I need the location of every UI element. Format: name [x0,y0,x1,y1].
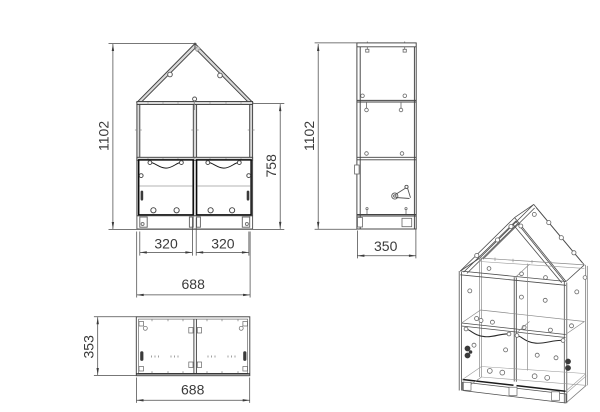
svg-text:758: 758 [263,154,279,178]
svg-text:688: 688 [181,382,205,398]
svg-text:1102: 1102 [96,121,112,151]
svg-text:688: 688 [182,276,206,292]
svg-text:350: 350 [374,238,398,254]
svg-text:1102: 1102 [301,121,317,151]
svg-text:320: 320 [211,235,235,251]
svg-text:320: 320 [154,235,178,251]
svg-text:353: 353 [80,335,96,359]
